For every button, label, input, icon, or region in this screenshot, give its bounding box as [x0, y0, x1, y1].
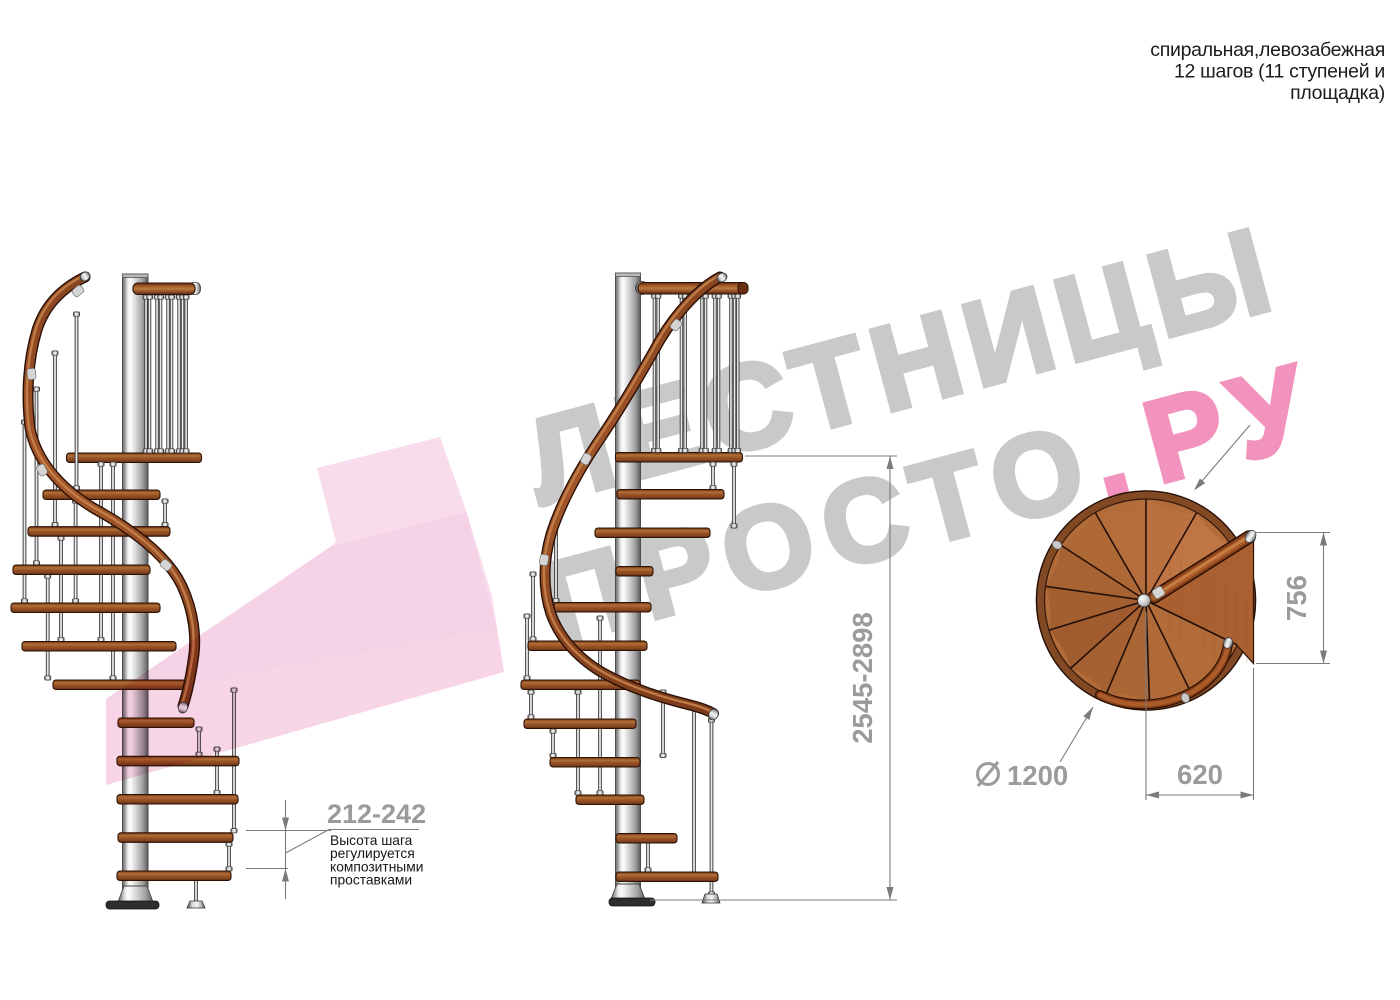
svg-text:проставками: проставками	[330, 873, 412, 888]
svg-text:756: 756	[1281, 575, 1312, 621]
svg-text:1200: 1200	[1007, 760, 1068, 791]
svg-text:12 шагов (11 ступеней и: 12 шагов (11 ступеней и	[1174, 61, 1385, 83]
svg-text:спиральная,левозабежная: спиральная,левозабежная	[1150, 39, 1385, 61]
svg-text:212-242: 212-242	[327, 799, 426, 829]
svg-text:620: 620	[1177, 759, 1223, 790]
svg-text:2545-2898: 2545-2898	[847, 612, 878, 744]
svg-text:площадка): площадка)	[1290, 82, 1385, 104]
